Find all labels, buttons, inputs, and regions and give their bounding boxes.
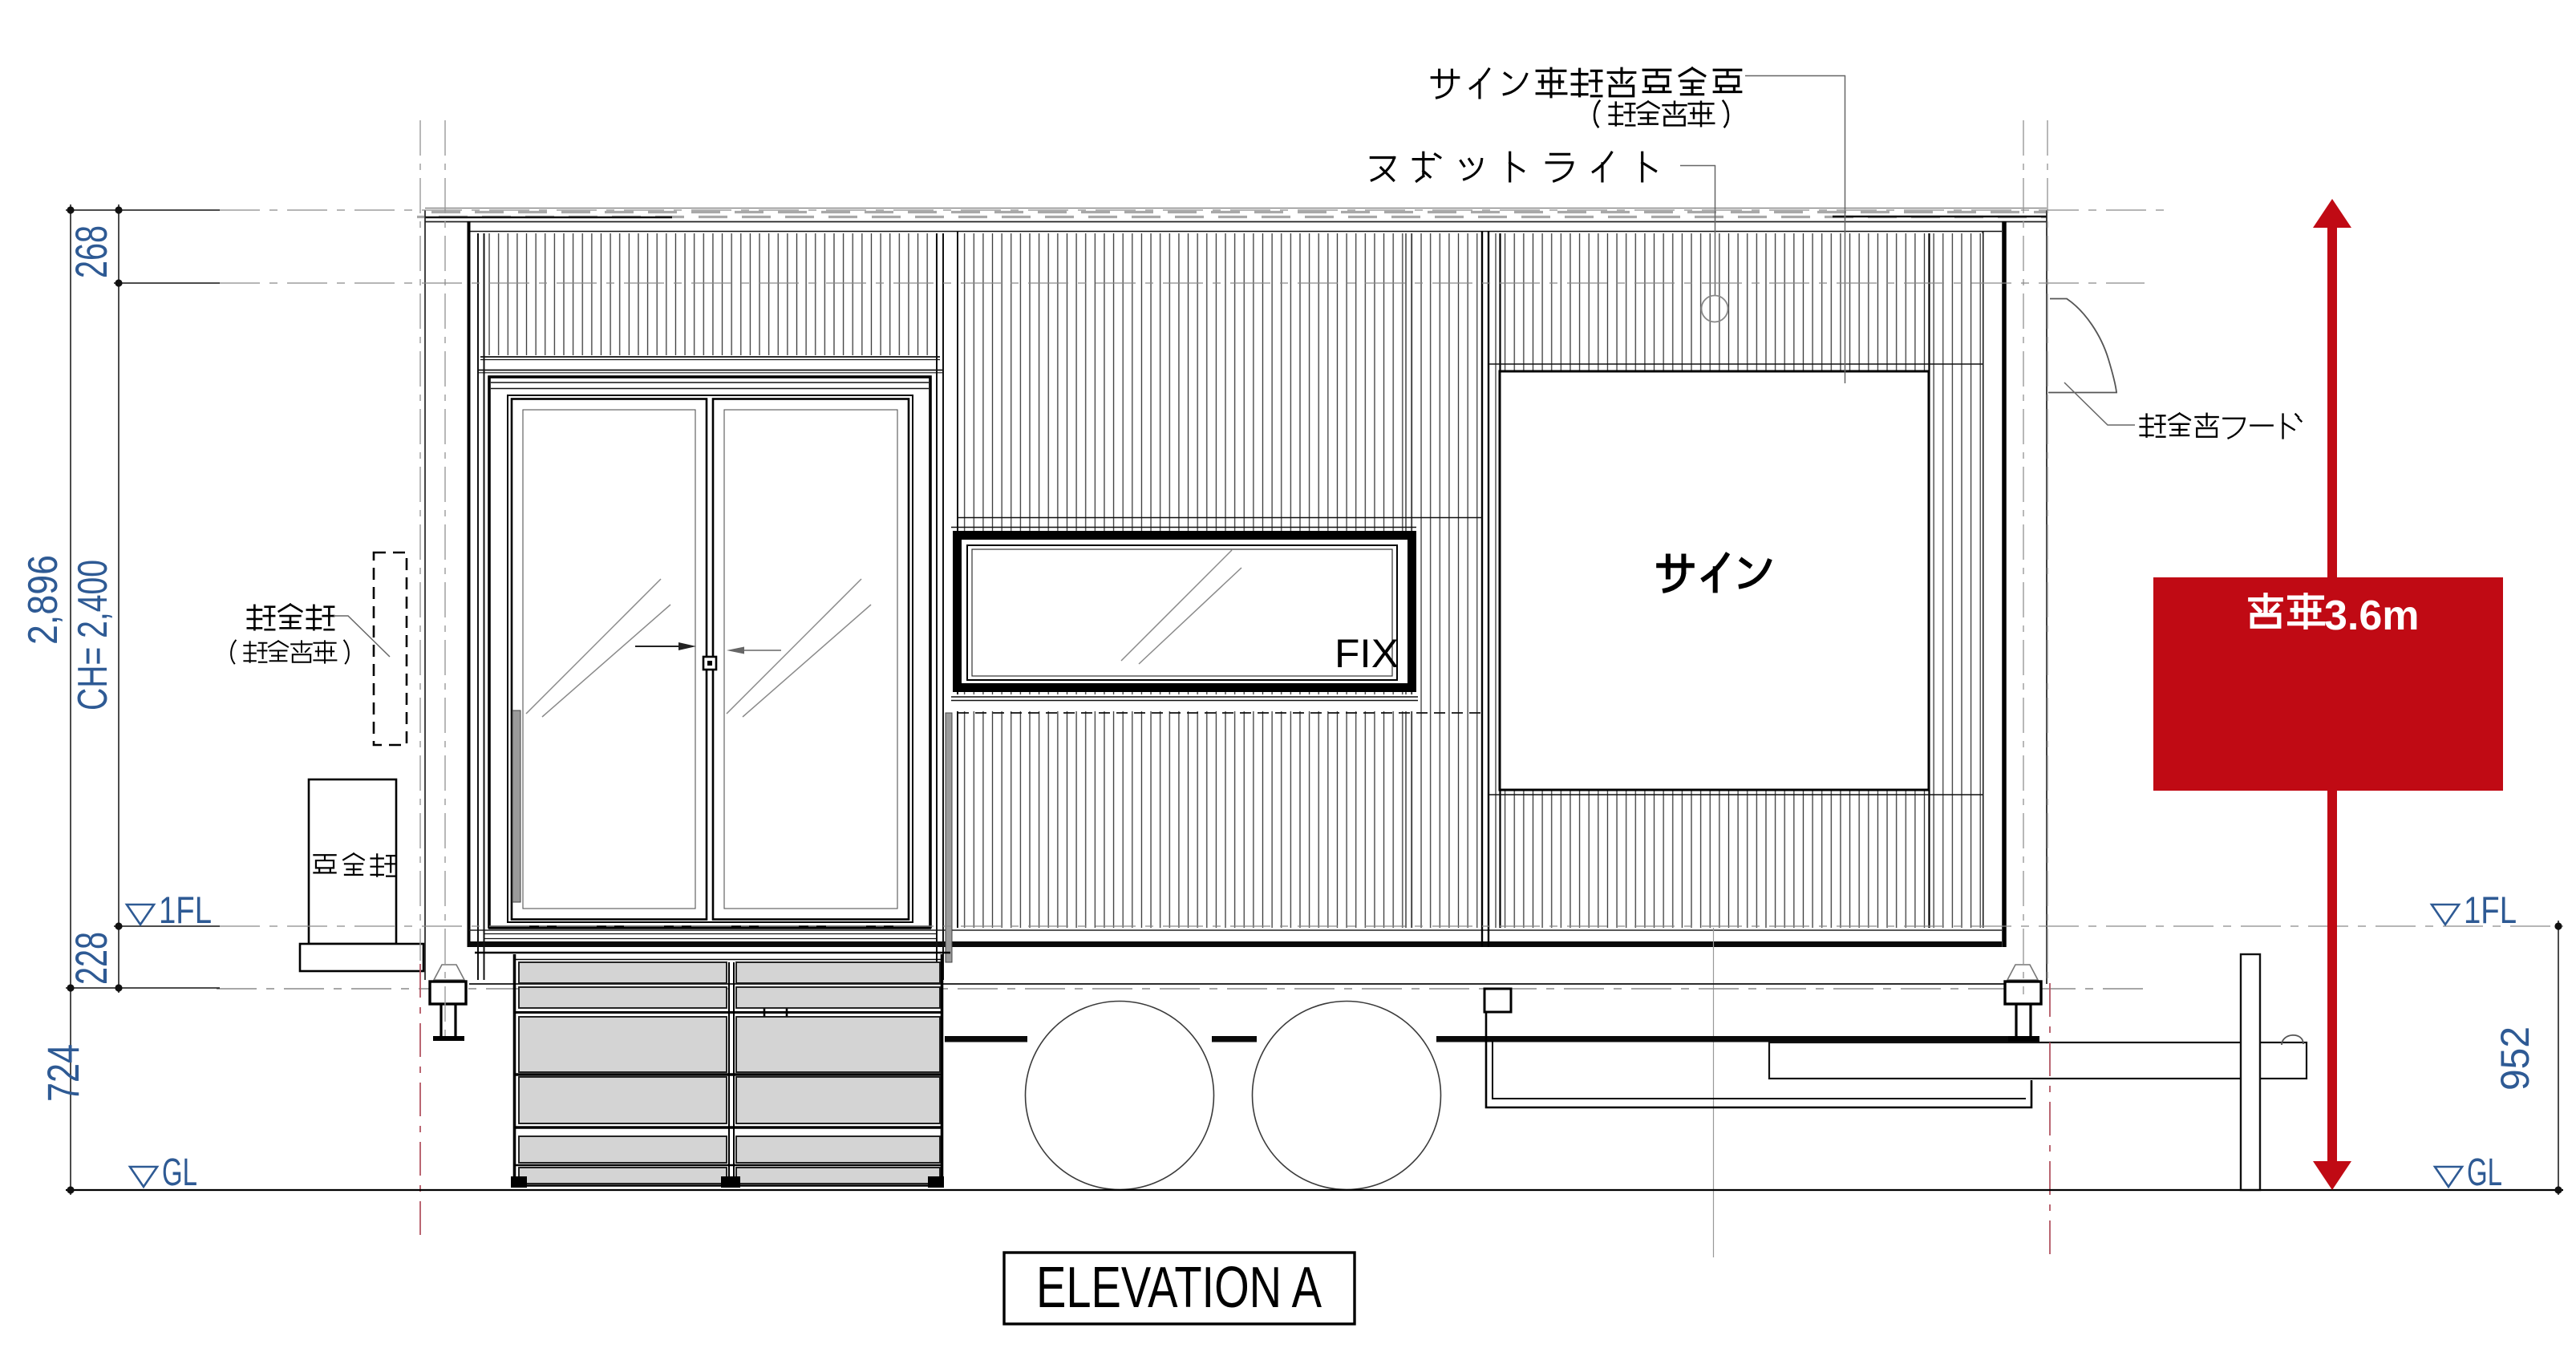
svg-text:GL: GL: [162, 1152, 197, 1194]
svg-text:CH= 2,400: CH= 2,400: [70, 560, 116, 710]
svg-text:724: 724: [38, 1044, 88, 1102]
svg-text:268: 268: [66, 225, 116, 278]
svg-text:2,896: 2,896: [20, 555, 67, 645]
svg-text:GL: GL: [2467, 1152, 2502, 1194]
svg-text:1FL: 1FL: [159, 889, 212, 931]
svg-text:ELEVATION A: ELEVATION A: [1036, 1256, 1322, 1320]
svg-text:952: 952: [2493, 1026, 2538, 1091]
svg-text:FIX: FIX: [1335, 631, 1399, 676]
svg-text:228: 228: [66, 932, 116, 985]
svg-text:3.6m: 3.6m: [2324, 593, 2420, 639]
svg-text:1FL: 1FL: [2464, 889, 2517, 931]
